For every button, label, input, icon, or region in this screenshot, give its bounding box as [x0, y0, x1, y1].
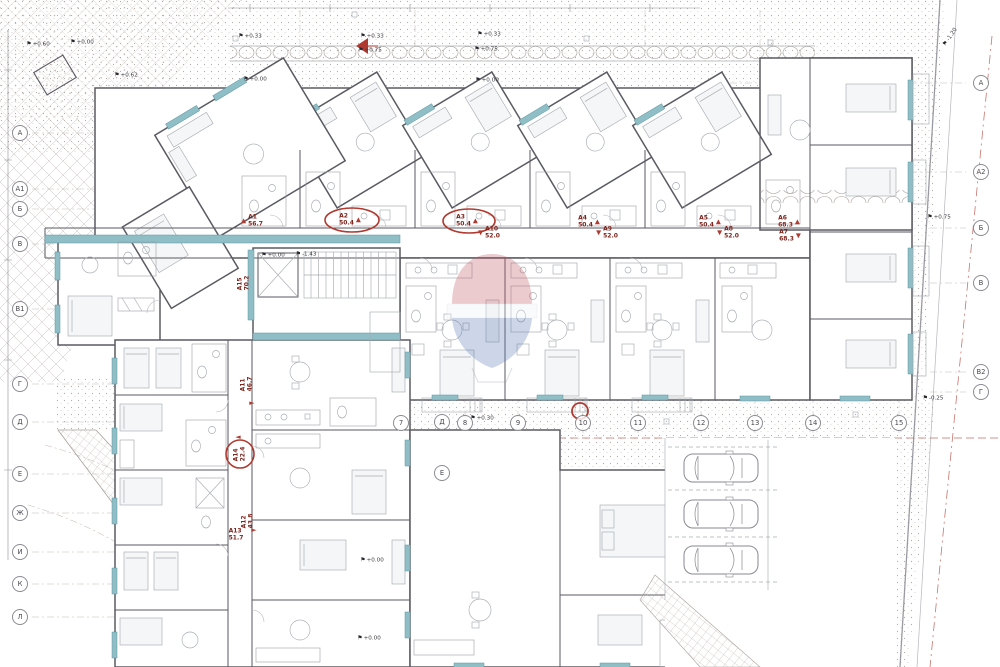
level-flag-icon: ⚑ — [114, 72, 119, 79]
elevation-marker: ⚑+0.00 — [70, 39, 94, 46]
level-flag-icon: ⚑ — [243, 76, 248, 83]
elevation-marker: ⚑-1.43 — [296, 251, 317, 258]
grid-axis-bottom-0: 7 — [393, 415, 409, 431]
elevation-marker: ⚑+0.60 — [26, 41, 50, 48]
elevation-marker: ⚑+0.30 — [470, 415, 494, 422]
level-flag-icon: ⚑ — [26, 41, 31, 48]
grid-axis-right-1: А2 — [973, 164, 989, 180]
down-arrow-icon: ▼ — [717, 229, 722, 236]
down-arrow-icon: ▼ — [596, 229, 601, 236]
grid-axis-left-7: Е — [12, 466, 28, 482]
elevation-marker: ⚑+0.62 — [114, 72, 138, 79]
elevation-marker: ⚑+0.75 — [474, 46, 498, 53]
floorplan-drawing — [0, 0, 1000, 667]
grid-axis-bottom-letter-1: Е — [434, 465, 450, 481]
grid-axis-bottom-8: 15 — [891, 415, 907, 431]
unit-label-a11: A1146.7 — [240, 377, 253, 392]
grid-axis-bottom-4: 11 — [630, 415, 646, 431]
elevation-marker: ⚑+0.00 — [475, 77, 499, 84]
grid-axis-right-2: Б — [973, 220, 989, 236]
level-flag-icon: ⚑ — [470, 415, 475, 422]
unit-label-a9: ▼ A952.0 — [596, 226, 618, 239]
unit-label-a14: A1422.4 — [233, 447, 246, 462]
grid-axis-bottom-3: 10 — [575, 415, 591, 431]
unit-label-a3: A350.4 ▲ — [456, 214, 478, 227]
up-arrow-icon: ▲ — [716, 218, 721, 225]
car-icon — [684, 497, 758, 531]
level-flag-icon: ⚑ — [360, 33, 365, 40]
grid-axis-left-4: В1 — [12, 301, 28, 317]
elevation-marker: ⚑-0.25 — [923, 395, 944, 402]
grid-axis-bottom-7: 14 — [805, 415, 821, 431]
down-arrow-icon: ▼ — [796, 232, 801, 239]
unit-label-a7: A768.3 ▼ — [779, 229, 801, 242]
elevation-marker: ⚑+0.33 — [477, 31, 501, 38]
level-flag-icon: ⚑ — [296, 251, 301, 258]
level-flag-icon: ⚑ — [70, 39, 75, 46]
left-arrow-icon: ◄ — [235, 433, 240, 441]
grid-axis-left-3: В — [12, 236, 28, 252]
car-icon — [684, 543, 758, 577]
unit-label-a2: A250.4 ▲ — [339, 213, 361, 226]
grid-axis-right-4: В2 — [973, 364, 989, 380]
car-icon — [684, 451, 758, 485]
elevation-marker: ⚑+0.75 — [358, 47, 382, 54]
grid-axis-left-0: А — [12, 125, 28, 141]
grid-axis-left-5: Г — [12, 376, 28, 392]
level-flag-icon: ⚑ — [238, 33, 243, 40]
grid-axis-bottom-letter-0: Д — [434, 414, 450, 430]
up-arrow-icon: ▲ — [356, 216, 361, 223]
grid-axis-bottom-5: 12 — [693, 415, 709, 431]
unit-label-a8: ▼ A852.0 — [717, 226, 739, 239]
unit-label-a10: ▼ A1052.0 — [478, 226, 500, 239]
unit-label-a13: A1351.7 — [229, 528, 244, 541]
elevation-marker: ⚑+0.00 — [261, 252, 285, 259]
grid-axis-bottom-6: 13 — [747, 415, 763, 431]
grid-axis-right-3: В — [973, 275, 989, 291]
elevation-marker: ⚑+0.00 — [357, 635, 381, 642]
level-flag-icon: ⚑ — [357, 635, 362, 642]
right-arrow-icon: ► — [251, 526, 256, 534]
up-arrow-icon: ▲ — [473, 217, 478, 224]
grid-axis-left-11: Л — [12, 609, 28, 625]
elevation-marker: ⚑+0.00 — [243, 76, 267, 83]
level-flag-icon: ⚑ — [358, 47, 363, 54]
level-flag-icon: ⚑ — [360, 557, 365, 564]
parking-area — [640, 438, 895, 667]
unit-label-a15: A1570.2 — [237, 276, 250, 291]
grid-axis-left-9: И — [12, 544, 28, 560]
level-flag-icon: ⚑ — [927, 214, 932, 221]
level-flag-icon: ⚑ — [475, 77, 480, 84]
elevation-marker: ⚑+0.33 — [238, 33, 262, 40]
level-flag-icon: ⚑ — [261, 252, 266, 259]
floorplan-page: ▲ A156.7 A250.4 ▲ A350.4 ▲ A450.4 ▲ A550… — [0, 0, 1000, 667]
unit-label-a1: ▲ A156.7 — [241, 214, 263, 227]
grid-axis-left-8: Ж — [12, 505, 28, 521]
grid-axis-left-10: К — [12, 576, 28, 592]
corridor-glazing — [45, 235, 400, 243]
down-arrow-icon: ▼ — [478, 229, 483, 236]
up-arrow-icon: ▲ — [595, 218, 600, 225]
grid-axis-left-1: А1 — [12, 181, 28, 197]
elevation-marker: ⚑+0.75 — [927, 214, 951, 221]
grid-axis-right-0: А — [973, 75, 989, 91]
level-flag-icon: ⚑ — [923, 395, 928, 402]
elevation-marker: ⚑+0.00 — [360, 557, 384, 564]
grid-axis-right-5: Г — [973, 384, 989, 400]
right-arrow-icon: ► — [249, 399, 254, 407]
up-arrow-icon: ▲ — [795, 218, 800, 225]
grid-axis-bottom-2: 9 — [510, 415, 526, 431]
level-flag-icon: ⚑ — [477, 31, 482, 38]
unit-label-a6: A668.3 ▲ — [778, 215, 800, 228]
level-flag-icon: ⚑ — [474, 46, 479, 53]
grid-axis-left-2: Б — [12, 201, 28, 217]
elevation-marker: ⚑+0.33 — [360, 33, 384, 40]
up-arrow-icon: ▲ — [241, 217, 246, 224]
grid-axis-left-6: Д — [12, 414, 28, 430]
